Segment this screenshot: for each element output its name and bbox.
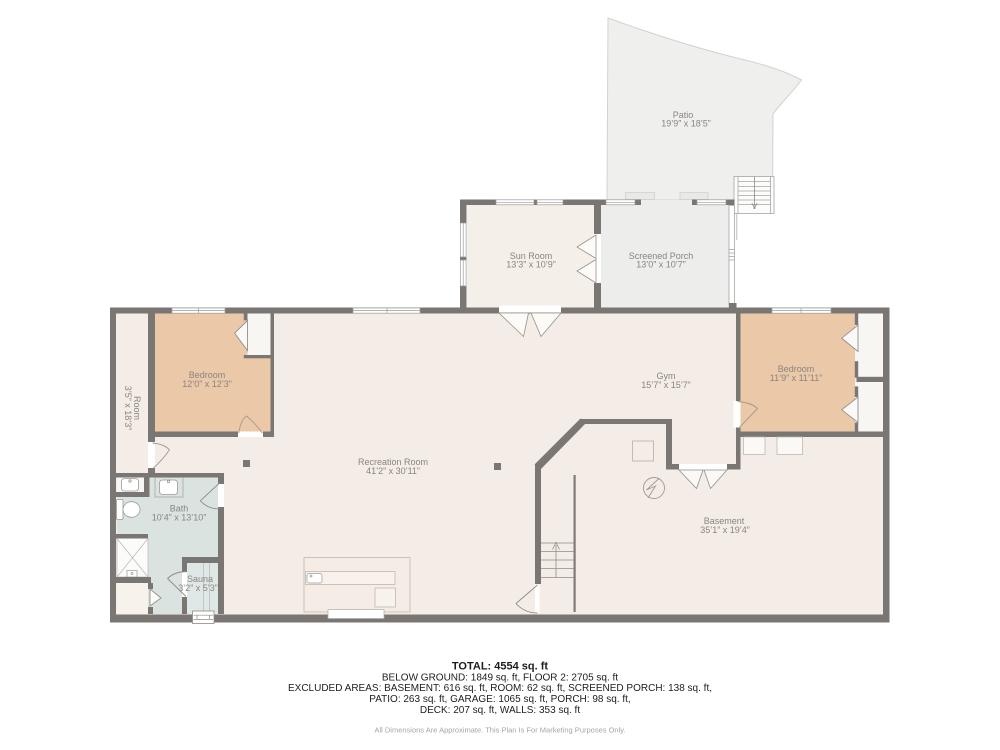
svg-text:19’9” x 18’5”: 19’9” x 18’5” [661, 119, 711, 129]
svg-text:35’1” x 19’4”: 35’1” x 19’4” [700, 525, 750, 535]
svg-text:15’7” x 15’7”: 15’7” x 15’7” [641, 380, 691, 390]
svg-text:All Dimensions Are Approximate: All Dimensions Are Approximate. This Pla… [374, 725, 625, 734]
svg-text:EXCLUDED AREAS: BASEMENT: 616: EXCLUDED AREAS: BASEMENT: 616 sq. ft, RO… [288, 683, 712, 694]
svg-text:3’5” x 18’3”: 3’5” x 18’3” [123, 386, 133, 431]
svg-text:10’4” x 13’10”: 10’4” x 13’10” [152, 513, 207, 523]
svg-text:13’3” x 10’9”: 13’3” x 10’9” [506, 259, 556, 269]
svg-text:TOTAL: 4554 sq. ft: TOTAL: 4554 sq. ft [452, 661, 549, 673]
svg-text:3’2” x 5’3”: 3’2” x 5’3” [178, 583, 218, 593]
svg-text:11’9” x 11’11”: 11’9” x 11’11” [770, 373, 823, 383]
svg-text:13’0” x 10’7”: 13’0” x 10’7” [636, 259, 686, 269]
svg-text:BELOW GROUND: 1849 sq. ft, FLO: BELOW GROUND: 1849 sq. ft, FLOOR 2: 2705… [382, 672, 618, 683]
svg-text:12’0” x 12’3”: 12’0” x 12’3” [182, 379, 232, 389]
svg-text:PATIO: 263 sq. ft, GARAGE: 106: PATIO: 263 sq. ft, GARAGE: 1065 sq. ft, … [369, 694, 630, 705]
svg-text:DECK: 207 sq. ft, WALLS: 353 s: DECK: 207 sq. ft, WALLS: 353 sq. ft [420, 705, 580, 716]
svg-text:41’2” x 30’11”: 41’2” x 30’11” [366, 466, 420, 476]
